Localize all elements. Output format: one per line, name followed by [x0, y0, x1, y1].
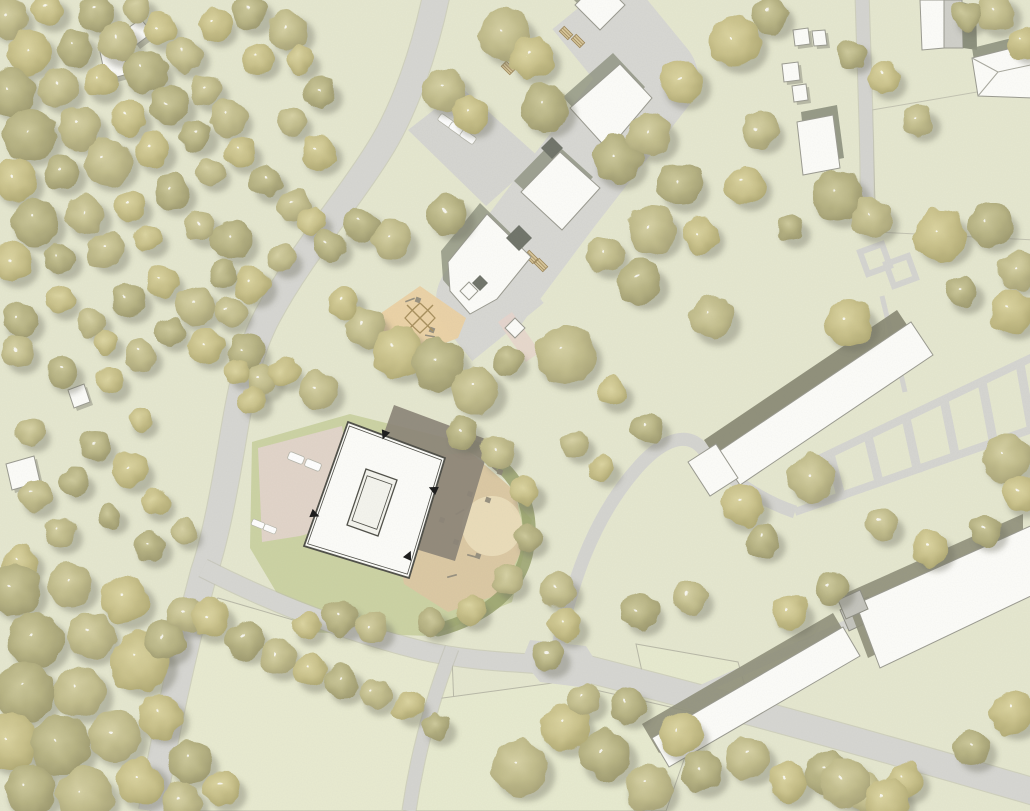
tree-canopy-icon — [188, 328, 224, 364]
tree-canopy-icon — [38, 68, 78, 108]
tree-canopy-icon — [682, 217, 718, 253]
tree-canopy-icon — [452, 96, 488, 132]
tree-canopy-icon — [156, 318, 184, 346]
tree-canopy-icon — [190, 598, 230, 638]
tree-canopy-icon — [175, 286, 215, 326]
tree-canopy-icon — [7, 612, 63, 668]
tree-canopy-icon — [298, 208, 326, 236]
tree-canopy-icon — [838, 40, 866, 68]
site-plan-map — [0, 0, 1030, 811]
tree-canopy-icon — [868, 62, 900, 94]
shed-ne-1 — [793, 28, 810, 46]
tree-canopy-icon — [2, 336, 34, 368]
tree-canopy-icon — [772, 594, 808, 630]
tree-canopy-icon — [167, 37, 203, 73]
tree-canopy-icon — [418, 608, 446, 636]
tree-canopy-icon — [87, 232, 123, 268]
tree-canopy-icon — [658, 163, 702, 207]
tree-canopy-icon — [548, 608, 582, 642]
tree-canopy-icon — [44, 154, 80, 190]
tree-canopy-icon — [852, 198, 892, 238]
tree-canopy-icon — [110, 282, 146, 318]
tree-canopy-icon — [168, 740, 212, 784]
tree-canopy-icon — [204, 770, 240, 806]
tree-canopy-icon — [2, 302, 38, 338]
tree-canopy-icon — [144, 14, 176, 46]
tree-canopy-icon — [690, 296, 734, 340]
tree-canopy-icon — [452, 366, 500, 414]
tree-canopy-icon — [226, 621, 264, 659]
tree-canopy-icon — [298, 370, 338, 410]
tree-canopy-icon — [300, 134, 336, 170]
tree-canopy-icon — [725, 165, 765, 205]
tree-canopy-icon — [114, 190, 146, 222]
tree-canopy-icon — [682, 752, 722, 792]
tree-canopy-icon — [952, 2, 980, 30]
tree-canopy-icon — [286, 46, 314, 74]
tree-canopy-icon — [8, 30, 52, 74]
tree-canopy-icon — [824, 298, 872, 346]
tree-canopy-icon — [214, 296, 246, 328]
tree-canopy-icon — [745, 523, 779, 557]
tree-canopy-icon — [494, 346, 522, 374]
tree-canopy-icon — [98, 504, 122, 528]
tree-canopy-icon — [821, 758, 869, 806]
tree-canopy-icon — [16, 418, 44, 446]
tree-canopy-icon — [242, 42, 274, 74]
tree-canopy-icon — [359, 678, 391, 710]
tree-canopy-icon — [622, 594, 658, 630]
tree-canopy-icon — [110, 100, 146, 136]
tree-canopy-icon — [325, 665, 359, 699]
tree-canopy-icon — [66, 612, 114, 660]
tree-canopy-icon — [587, 237, 623, 273]
tree-canopy-icon — [946, 276, 978, 308]
shed-ne-4 — [792, 84, 808, 102]
tree-canopy-icon — [902, 104, 934, 136]
tree-canopy-icon — [569, 684, 601, 716]
tree-canopy-icon — [150, 85, 190, 125]
tree-canopy-icon — [89, 710, 141, 762]
tree-canopy-icon — [180, 119, 212, 151]
tree-canopy-icon — [742, 112, 778, 148]
tree-canopy-icon — [293, 653, 327, 687]
tree-canopy-icon — [112, 452, 148, 488]
tree-canopy-icon — [278, 108, 306, 136]
tree-canopy-icon — [628, 113, 672, 157]
tree-canopy-icon — [535, 325, 595, 385]
tree-canopy-icon — [540, 572, 576, 608]
tree-canopy-icon — [44, 516, 76, 548]
tree-canopy-icon — [579, 729, 631, 781]
tree-canopy-icon — [65, 195, 105, 235]
tree-canopy-icon — [481, 435, 515, 469]
tree-canopy-icon — [968, 203, 1012, 247]
tree-canopy-icon — [226, 360, 250, 384]
tree-canopy-icon — [134, 224, 162, 252]
tree-canopy-icon — [492, 740, 548, 796]
tree-canopy-icon — [4, 109, 56, 161]
small-building-northeast — [797, 115, 840, 175]
tree-canopy-icon — [304, 76, 336, 108]
tree-canopy-icon — [660, 60, 704, 104]
tree-canopy-icon — [54, 666, 106, 718]
tree-canopy-icon — [866, 509, 898, 541]
tree-canopy-icon — [260, 639, 296, 675]
tree-canopy-icon — [322, 600, 358, 636]
tree-canopy-icon — [190, 74, 222, 106]
tree-canopy-icon — [982, 434, 1030, 482]
tree-canopy-icon — [57, 30, 93, 66]
tree-canopy-icon — [776, 214, 804, 242]
tree-canopy-icon — [134, 132, 170, 168]
tree-canopy-icon — [658, 713, 702, 757]
tree-canopy-icon — [768, 762, 808, 802]
tree-canopy-icon — [44, 242, 76, 274]
tree-canopy-icon — [250, 166, 282, 198]
tree-canopy-icon — [46, 356, 78, 388]
northeast-hall-white — [920, 0, 944, 50]
tree-canopy-icon — [224, 136, 256, 168]
tree-canopy-icon — [196, 158, 224, 186]
tree-canopy-icon — [561, 430, 589, 458]
tree-canopy-icon — [455, 595, 485, 625]
tree-canopy-icon — [84, 66, 116, 98]
shed-ne-2 — [812, 30, 827, 46]
tree-canopy-icon — [720, 483, 764, 527]
tree-canopy-icon — [618, 260, 662, 304]
tree-canopy-icon — [969, 514, 1001, 546]
tree-canopy-icon — [610, 687, 646, 723]
tree-canopy-icon — [510, 36, 554, 80]
tree-canopy-icon — [816, 572, 848, 604]
tree-canopy-icon — [510, 477, 540, 507]
tree-canopy-icon — [328, 286, 360, 318]
tree-canopy-icon — [954, 730, 990, 766]
tree-canopy-icon — [292, 612, 320, 640]
tree-canopy-icon — [61, 468, 89, 496]
tree-canopy-icon — [123, 50, 167, 94]
tree-canopy-icon — [726, 736, 770, 780]
shed-ne-3 — [782, 62, 800, 82]
tree-canopy-icon — [84, 138, 132, 186]
tree-canopy-icon — [628, 206, 676, 254]
tree-canopy-icon — [134, 530, 166, 562]
site-plan-canvas — [0, 0, 1030, 811]
tree-canopy-icon — [48, 563, 92, 607]
tree-canopy-icon — [597, 377, 627, 407]
tree-canopy-icon — [422, 712, 450, 740]
tree-canopy-icon — [19, 480, 51, 512]
tree-canopy-icon — [94, 330, 118, 354]
tree-canopy-icon — [101, 576, 149, 624]
tree-canopy-icon — [268, 10, 308, 50]
tree-canopy-icon — [372, 220, 412, 260]
tree-canopy-icon — [199, 9, 231, 41]
tree-canopy-icon — [141, 488, 169, 516]
tree-canopy-icon — [172, 520, 196, 544]
tree-canopy-icon — [154, 174, 190, 210]
tree-canopy-icon — [493, 565, 523, 595]
tree-canopy-icon — [912, 530, 948, 566]
tree-canopy-icon — [212, 220, 252, 260]
tree-canopy-icon — [632, 412, 664, 444]
tree-canopy-icon — [270, 358, 298, 386]
tree-canopy-icon — [79, 430, 111, 462]
tree-canopy-icon — [914, 209, 966, 261]
tree-canopy-icon — [96, 368, 124, 396]
tree-canopy-icon — [46, 286, 74, 314]
tree-canopy-icon — [234, 266, 270, 302]
tree-canopy-icon — [709, 16, 761, 68]
tree-canopy-icon — [268, 244, 296, 272]
tree-canopy-icon — [446, 416, 478, 448]
tree-canopy-icon — [128, 408, 152, 432]
tree-canopy-icon — [314, 230, 346, 262]
tree-canopy-icon — [116, 758, 164, 806]
tree-canopy-icon — [124, 340, 156, 372]
tree-canopy-icon — [210, 100, 246, 136]
tree-canopy-icon — [138, 694, 182, 738]
tree-canopy-icon — [673, 581, 707, 615]
tree-canopy-icon — [788, 454, 836, 502]
tree-canopy-icon — [184, 210, 216, 242]
tree-canopy-icon — [146, 266, 178, 298]
tree-canopy-icon — [393, 691, 423, 721]
tree-canopy-icon — [589, 455, 615, 481]
tree-canopy-icon — [238, 386, 266, 414]
tree-canopy-icon — [428, 195, 468, 235]
tree-canopy-icon — [514, 524, 542, 552]
tree-canopy-icon — [208, 260, 236, 288]
tree-canopy-icon — [624, 764, 672, 811]
tree-canopy-icon — [356, 612, 388, 644]
tree-canopy-icon — [11, 198, 59, 246]
tree-canopy-icon — [532, 640, 564, 672]
tree-canopy-icon — [521, 84, 569, 132]
